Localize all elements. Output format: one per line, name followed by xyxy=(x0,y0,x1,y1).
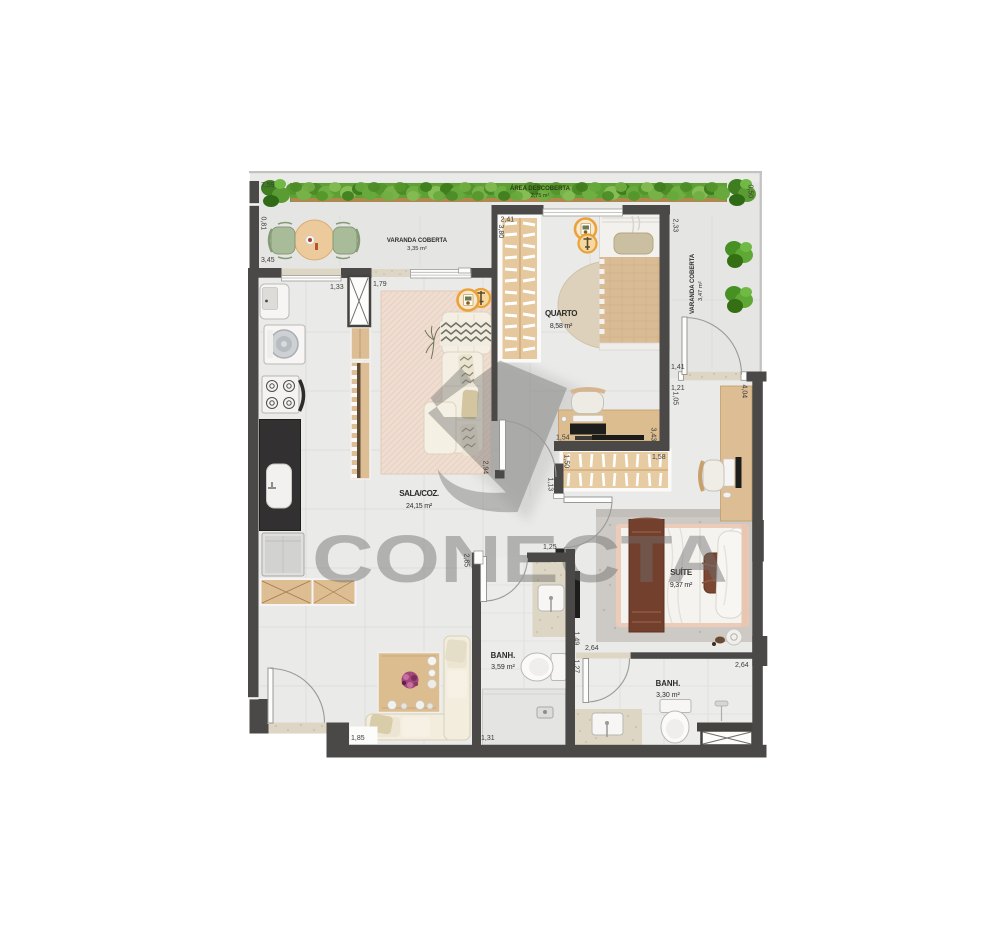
svg-text:1,54: 1,54 xyxy=(556,435,570,442)
svg-text:CONECTA: CONECTA xyxy=(312,523,728,597)
svg-text:3,35 m²: 3,35 m² xyxy=(407,246,427,252)
svg-text:1,31: 1,31 xyxy=(481,735,495,742)
svg-text:1,79: 1,79 xyxy=(373,281,387,288)
svg-text:24,15 m²: 24,15 m² xyxy=(406,503,433,510)
svg-text:8,58 m²: 8,58 m² xyxy=(550,323,573,330)
svg-text:BANH.: BANH. xyxy=(491,651,516,660)
svg-text:3,45: 3,45 xyxy=(261,257,275,264)
svg-text:2,85: 2,85 xyxy=(463,554,470,568)
svg-text:1,41: 1,41 xyxy=(671,364,685,371)
svg-text:3,30 m²: 3,30 m² xyxy=(656,692,680,699)
svg-text:ÁREA DESCOBERTA: ÁREA DESCOBERTA xyxy=(510,185,571,192)
svg-text:QUARTO: QUARTO xyxy=(545,309,577,318)
svg-text:1,13: 1,13 xyxy=(547,478,554,492)
svg-text:0,50: 0,50 xyxy=(747,185,754,199)
svg-text:3,47 m²: 3,47 m² xyxy=(698,281,704,301)
svg-text:2,94: 2,94 xyxy=(482,461,489,475)
svg-text:2,33: 2,33 xyxy=(672,219,679,233)
svg-text:1,58: 1,58 xyxy=(652,454,666,461)
svg-text:0,81: 0,81 xyxy=(260,217,267,231)
svg-text:1,05: 1,05 xyxy=(672,392,679,406)
svg-text:2,64: 2,64 xyxy=(585,645,599,652)
svg-text:3,75 m²: 3,75 m² xyxy=(531,193,550,199)
svg-text:1,85: 1,85 xyxy=(351,735,365,742)
svg-text:1,50: 1,50 xyxy=(563,455,570,469)
svg-text:3,43: 3,43 xyxy=(650,428,657,442)
svg-text:3,80: 3,80 xyxy=(497,225,504,239)
svg-text:1,27: 1,27 xyxy=(573,660,580,674)
svg-text:7,59: 7,59 xyxy=(261,182,275,189)
svg-text:VARANDA COBERTA: VARANDA COBERTA xyxy=(387,238,448,244)
svg-text:VARANDA COBERTA: VARANDA COBERTA xyxy=(690,253,696,314)
svg-text:3,59 m²: 3,59 m² xyxy=(491,664,515,671)
svg-text:2,41: 2,41 xyxy=(501,217,515,224)
svg-text:1,33: 1,33 xyxy=(330,284,344,291)
svg-text:1,49: 1,49 xyxy=(573,632,580,646)
svg-text:SALA/COZ.: SALA/COZ. xyxy=(399,489,439,498)
svg-text:1,25: 1,25 xyxy=(543,544,557,551)
svg-text:4,04: 4,04 xyxy=(741,385,748,399)
svg-text:2,64: 2,64 xyxy=(735,662,749,669)
svg-text:BANH.: BANH. xyxy=(656,679,681,688)
